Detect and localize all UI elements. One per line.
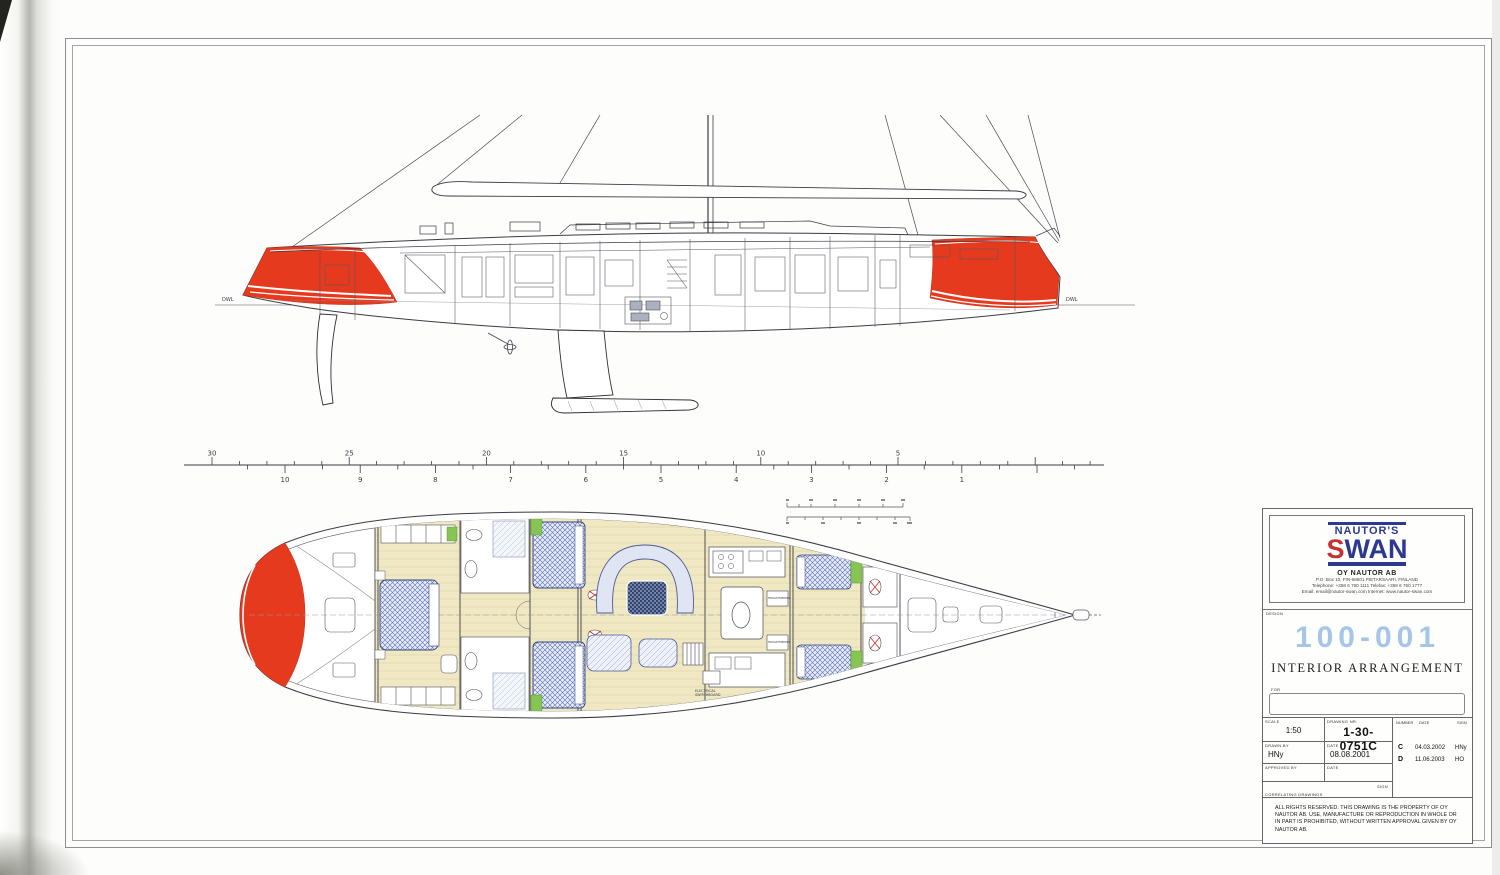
company-name: OY NAUTOR AB xyxy=(1270,570,1464,577)
bow-fitting xyxy=(1073,610,1101,620)
scanned-drawing-sheet: DWL DWL xyxy=(0,0,1500,875)
drawing-title: INTERIOR ARRANGEMENT xyxy=(1263,661,1472,676)
ruler-bottom-label: 3 xyxy=(809,476,813,484)
drawing-nr-cell: DRAWING NR. 1-30-0751C xyxy=(1325,718,1393,742)
saloon-table xyxy=(627,581,667,615)
boom xyxy=(432,182,1026,199)
rudder xyxy=(317,314,337,405)
svg-text:SWITCHBOARD: SWITCHBOARD xyxy=(695,693,721,697)
drawn-by-label: DRAWN BY xyxy=(1265,743,1322,748)
red-bow xyxy=(930,237,1059,308)
svg-text:FRIDGE/FREEZER: FRIDGE/FREEZER xyxy=(768,640,791,644)
logo-swan-s: S xyxy=(1326,534,1344,564)
interior-plan-view: FRIDGE/FREEZER FRIDGE/FREEZER ELECTRICAL… xyxy=(225,495,1105,747)
green-locker xyxy=(531,695,542,711)
profile-view: DWL DWL xyxy=(170,95,1180,440)
owner-seat xyxy=(441,655,457,673)
title-block: NAUTOR'S SWAN OY NAUTOR AB P.O. Box 10, … xyxy=(1262,508,1473,844)
design-field-label: DESIGN xyxy=(1266,611,1283,616)
sign-label-2: SIGN xyxy=(1377,784,1388,789)
form-grid: SCALE 1:50 DRAWING NR. 1-30-0751C DRAWN … xyxy=(1263,717,1472,797)
ruler-top-label: 10 xyxy=(756,450,765,458)
keel-fin xyxy=(558,330,613,398)
dwl-label-left: DWL xyxy=(222,297,234,303)
ruler-top-label: 20 xyxy=(482,450,491,458)
scan-edge-bottom xyxy=(0,848,1500,875)
ruler-top-label: 25 xyxy=(345,450,354,458)
pillow xyxy=(797,557,805,587)
ruler-bottom-label: 4 xyxy=(734,476,739,484)
scale-value: 1:50 xyxy=(1265,726,1322,735)
ruler-bottom-label: 10 xyxy=(281,476,290,484)
mast xyxy=(708,115,713,237)
nautors-swan-logo: NAUTOR'S SWAN xyxy=(1270,522,1464,566)
scan-edge-left xyxy=(0,0,64,875)
approved-date-cell: DATE xyxy=(1325,764,1393,782)
number-header: NUMBER xyxy=(1396,720,1413,725)
ruler-bottom-label: 9 xyxy=(358,476,362,484)
logo-box: NAUTOR'S SWAN OY NAUTOR AB P.O. Box 10, … xyxy=(1269,515,1465,603)
dwl-label-right: DWL xyxy=(1066,297,1078,303)
scale-cell: SCALE 1:50 xyxy=(1263,718,1325,742)
approved-by-cell: APPROVED BY xyxy=(1263,764,1325,782)
revision-number: D xyxy=(1398,756,1403,763)
rigging-lines xyxy=(292,115,1060,247)
for-field-label: FOR xyxy=(1271,687,1280,692)
ruler-top-label: 5 xyxy=(896,450,900,458)
revision-sign: HO xyxy=(1455,757,1464,763)
green-locker xyxy=(447,527,457,541)
propeller xyxy=(488,333,516,354)
toilet xyxy=(465,653,477,670)
washbasin xyxy=(466,530,482,541)
pillow xyxy=(797,647,805,677)
pillow xyxy=(575,646,583,704)
drawn-by-cell: DRAWN BY HNy xyxy=(1263,742,1325,764)
saloon-sofa-port xyxy=(587,635,631,671)
for-field-box xyxy=(1269,693,1465,715)
galley-island xyxy=(721,587,763,639)
washbasin xyxy=(466,690,482,701)
revision-number: C xyxy=(1398,744,1403,751)
green-locker xyxy=(531,519,542,535)
ruler-bottom-label: 5 xyxy=(659,476,663,484)
project-number: 100-001 xyxy=(1263,621,1472,655)
ruler-bottom-label: 8 xyxy=(433,476,437,484)
keel-bulb xyxy=(552,398,699,413)
ruler-bottom-label: 7 xyxy=(508,476,512,484)
sign-header: SIGN xyxy=(1457,720,1467,725)
scan-edge-right xyxy=(1492,0,1500,875)
toilet xyxy=(465,561,477,578)
approved-date-label: DATE xyxy=(1327,765,1390,770)
pillow xyxy=(575,526,583,584)
revision-date: 04.03.2002 xyxy=(1415,745,1445,751)
approved-by-label: APPROVED BY xyxy=(1265,765,1322,770)
date-cell: DATE 08.08.2001 xyxy=(1325,742,1393,764)
ruler-bottom-label: 6 xyxy=(584,476,589,484)
correlating-cell: CORRELATING DRAWINGS SIGN xyxy=(1263,782,1393,798)
saloon-armchair xyxy=(639,639,677,667)
divider xyxy=(1263,609,1472,610)
svg-text:FRIDGE/FREEZER: FRIDGE/FREEZER xyxy=(768,596,791,600)
ruler-bottom-label: 1 xyxy=(960,476,964,484)
ruler-top-label: 30 xyxy=(208,450,217,458)
owner-pillows xyxy=(429,584,439,646)
logo-swan-wan: WAN xyxy=(1345,534,1408,564)
revision-date: 11.06.2003 xyxy=(1415,757,1445,763)
scale-label: SCALE xyxy=(1265,719,1322,724)
date-label: DATE xyxy=(1327,743,1390,748)
company-email: Email: email@nautor-swan.com Internet: w… xyxy=(1270,589,1464,595)
copyright-disclaimer: ALL RIGHTS RESERVED. THIS DRAWING IS THE… xyxy=(1263,797,1472,843)
scale-ruler: 3025201510510987654321 xyxy=(180,448,1110,490)
date-value: 08.08.2001 xyxy=(1327,750,1390,759)
revision-table: NUMBER DATE SIGN C 04.03.2002 HNy D 11.0… xyxy=(1393,718,1472,798)
ruler-bottom-label: 2 xyxy=(884,476,888,484)
date-header: DATE xyxy=(1419,720,1429,725)
companionway-stairs xyxy=(683,643,703,665)
logo-swan-text: SWAN xyxy=(1270,537,1464,562)
drawing-nr-label: DRAWING NR. xyxy=(1327,719,1390,724)
ruler-top-label: 15 xyxy=(619,450,628,458)
drawn-by-value: HNy xyxy=(1265,750,1322,759)
ruler-ticks: 3025201510510987654321 xyxy=(208,450,1091,485)
revision-sign: HNy xyxy=(1455,745,1467,751)
